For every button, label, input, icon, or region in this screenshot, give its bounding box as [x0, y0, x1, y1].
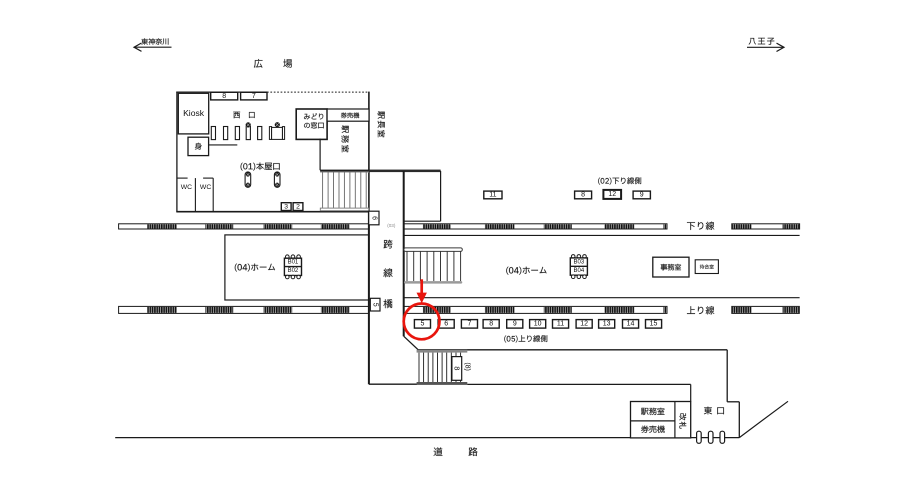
svg-text:WC: WC [200, 184, 211, 191]
svg-text:6: 6 [444, 321, 448, 328]
svg-text:11: 11 [557, 321, 564, 328]
svg-text:7: 7 [468, 321, 472, 328]
svg-text:B04: B04 [574, 268, 585, 274]
svg-text:9: 9 [513, 321, 517, 328]
svg-text:13: 13 [603, 321, 611, 328]
svg-text:B02: B02 [288, 268, 299, 274]
svg-text:6: 6 [370, 216, 377, 220]
svg-text:11: 11 [489, 192, 496, 199]
svg-text:5: 5 [421, 321, 425, 328]
svg-text:B03: B03 [574, 259, 585, 265]
svg-text:(03): (03) [387, 223, 396, 228]
svg-text:8: 8 [222, 93, 226, 100]
svg-text:WC: WC [181, 184, 192, 191]
svg-text:9: 9 [640, 192, 644, 199]
svg-text:Kiosk: Kiosk [183, 108, 205, 118]
svg-text:3: 3 [284, 203, 288, 210]
svg-text:B01: B01 [288, 260, 299, 266]
svg-text:(8): (8) [464, 362, 471, 371]
svg-text:8: 8 [489, 321, 493, 328]
svg-text:10: 10 [534, 321, 542, 328]
svg-text:8: 8 [581, 192, 585, 199]
svg-text:7: 7 [252, 93, 256, 100]
svg-text:14: 14 [627, 321, 635, 328]
svg-text:12: 12 [608, 191, 616, 198]
svg-text:15: 15 [650, 321, 658, 328]
svg-text:12: 12 [580, 321, 588, 328]
svg-text:8: 8 [452, 366, 461, 370]
svg-text:5: 5 [372, 303, 379, 307]
svg-text:2: 2 [296, 203, 300, 210]
